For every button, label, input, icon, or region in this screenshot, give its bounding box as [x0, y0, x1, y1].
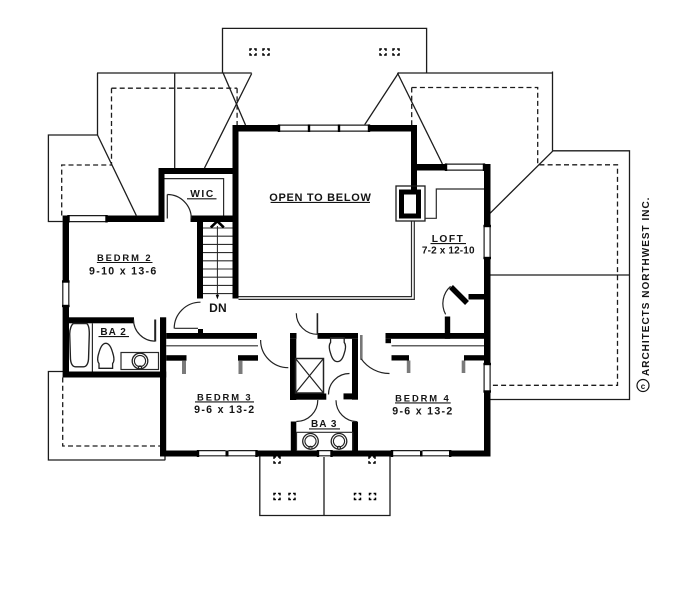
svg-text:9-10 x 13-6: 9-10 x 13-6 — [89, 265, 157, 277]
svg-text:DN: DN — [209, 301, 227, 315]
svg-text:c: c — [641, 382, 646, 391]
svg-text:7-2 x 12-10: 7-2 x 12-10 — [422, 246, 475, 257]
svg-text:BEDRM 2: BEDRM 2 — [97, 252, 153, 263]
svg-text:BEDRM 3: BEDRM 3 — [197, 391, 253, 402]
svg-text:9-6 x 13-2: 9-6 x 13-2 — [194, 404, 255, 416]
svg-text:9-6 x 13-2: 9-6 x 13-2 — [392, 406, 453, 418]
svg-text:BEDRM 4: BEDRM 4 — [395, 392, 451, 403]
svg-text:ARCHITECTS NORTHWEST INC.: ARCHITECTS NORTHWEST INC. — [641, 197, 652, 376]
